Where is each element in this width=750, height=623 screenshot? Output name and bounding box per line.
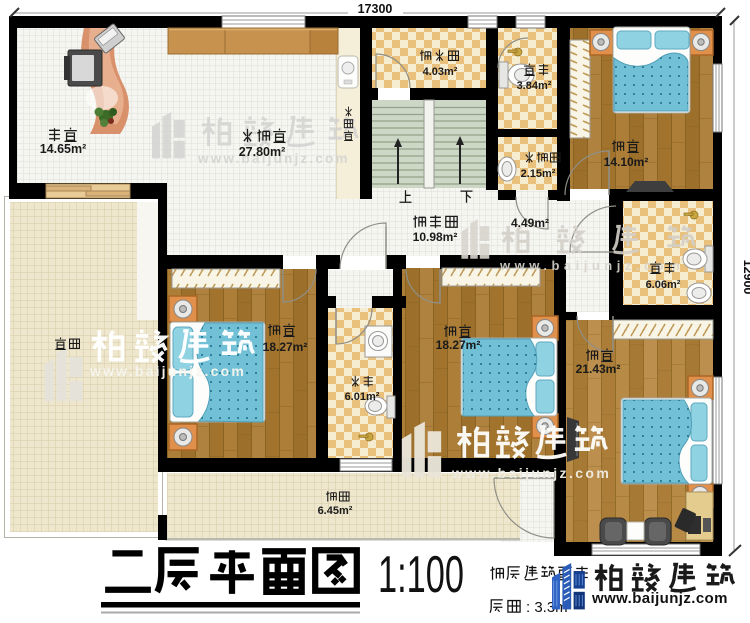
svg-text:18.27m²: 18.27m² (436, 338, 481, 352)
svg-text:www.baijunjz.com: www.baijunjz.com (591, 590, 728, 607)
svg-text:3.84m²: 3.84m² (517, 80, 552, 92)
svg-text:4.03m²: 4.03m² (423, 66, 458, 78)
svg-text:6.06m²: 6.06m² (646, 279, 681, 291)
svg-text:2.15m²: 2.15m² (521, 168, 556, 180)
svg-text:17300: 17300 (358, 2, 393, 16)
svg-text:www.baijunjz.com: www.baijunjz.com (451, 465, 611, 481)
svg-text:27.80m²: 27.80m² (239, 145, 286, 159)
svg-text:www.baijunjz.com: www.baijunjz.com (89, 363, 246, 379)
svg-text:www.baijunjz.com: www.baijunjz.com (499, 258, 684, 273)
svg-text:1:100: 1:100 (378, 546, 464, 604)
svg-text:12900: 12900 (741, 260, 750, 295)
svg-text:10.98m²: 10.98m² (413, 230, 458, 244)
svg-text:14.65m²: 14.65m² (40, 142, 87, 156)
svg-text:4.49m²: 4.49m² (511, 216, 549, 230)
svg-text:: 3.3m: : 3.3m (526, 599, 568, 616)
svg-text:21.43m²: 21.43m² (576, 362, 621, 376)
svg-text:6.45m²: 6.45m² (318, 505, 353, 517)
svg-text:18.27m²: 18.27m² (263, 340, 308, 354)
svg-text:6.01m²: 6.01m² (345, 391, 380, 403)
svg-text:14.10m²: 14.10m² (604, 155, 649, 169)
